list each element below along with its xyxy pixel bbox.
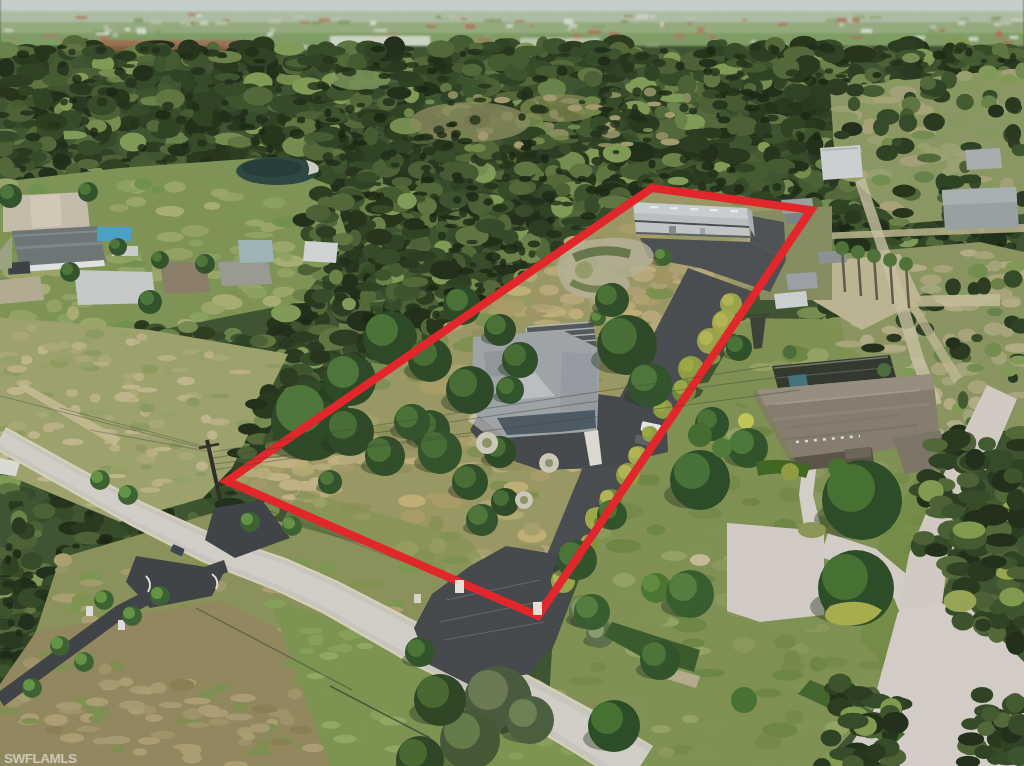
svg-text:SWFLAMLS: SWFLAMLS bbox=[4, 751, 77, 766]
